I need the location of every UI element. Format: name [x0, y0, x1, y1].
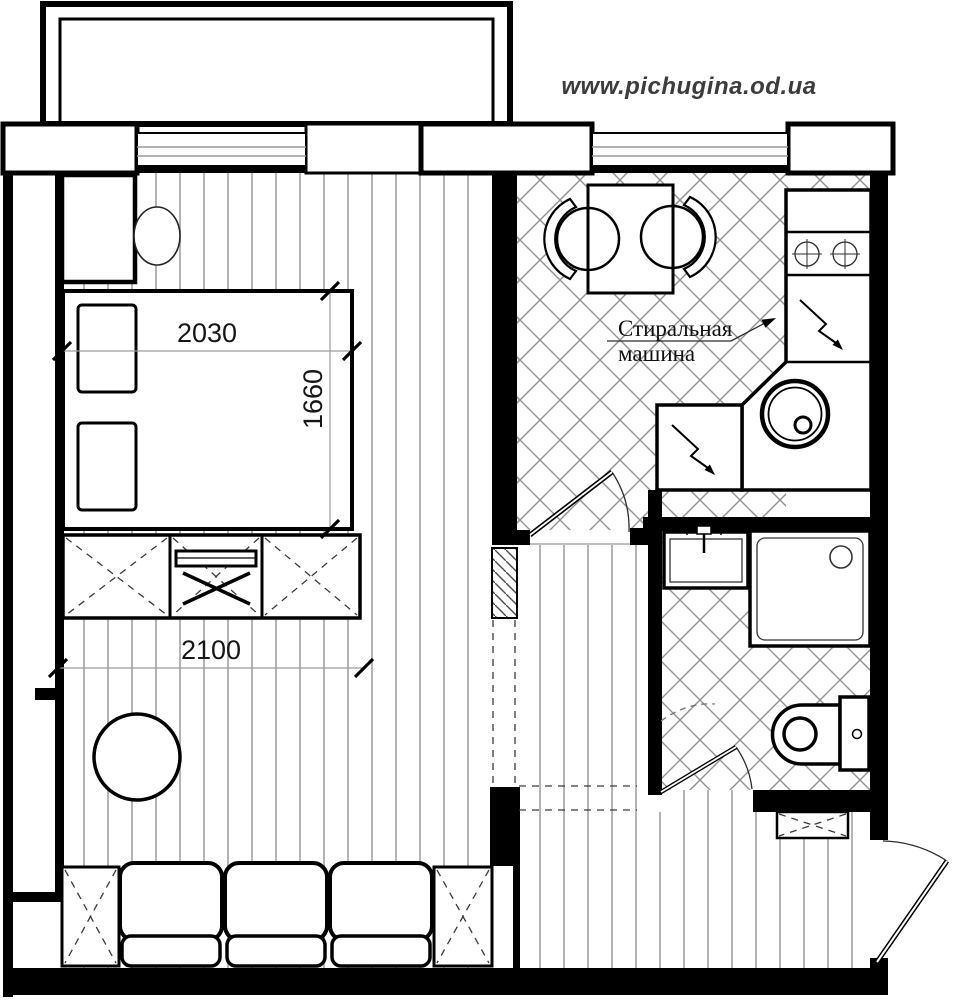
shower-cabin: [750, 531, 870, 646]
center-wall-upper: [492, 173, 517, 545]
dimension-text-2030: 2030: [177, 318, 237, 348]
washing-machine-label-line2: машина: [618, 341, 695, 366]
kitchen-table: [588, 185, 673, 293]
shoe-cabinet: [777, 812, 848, 838]
sofa-back-cushion: [225, 863, 327, 940]
sofa-seat-cushion: [332, 936, 430, 966]
kitchen-tile-strip: [786, 173, 872, 190]
site-watermark: www.pichugina.od.ua: [561, 73, 816, 100]
floor-plan-page: 2030 1660 2100 www.pichugina.od.ua Стира…: [0, 0, 953, 1000]
center-wall-lower-line: [513, 866, 520, 968]
pillow-bottom: [78, 423, 136, 510]
floor-plan-drawing: 2030 1660 2100 www.pichugina.od.ua Стира…: [0, 0, 953, 1000]
bathroom-left-wall: [648, 490, 662, 795]
sofa-seat-cushion: [227, 936, 325, 966]
toilet: [773, 697, 870, 770]
hall-wood-floor-strip: [662, 788, 753, 812]
bathroom-top-wall: [643, 517, 872, 531]
hall-wood-floor: [520, 545, 648, 968]
bathroom-bottom-wall: [753, 790, 888, 812]
kitchen-door-jamb-left: [517, 530, 530, 545]
wardrobe: [62, 175, 135, 282]
top-wall-center-block: [421, 124, 592, 173]
kitchen-window: [592, 133, 788, 173]
chair: [134, 207, 180, 265]
round-table: [94, 714, 180, 800]
tv-cabinet-row: [63, 535, 360, 618]
top-wall-pier: [306, 124, 421, 173]
dimension-text-2100: 2100: [181, 635, 241, 665]
left-wall-cap: [3, 892, 64, 902]
left-wall-outer-face: [3, 124, 13, 997]
new-partition-hatched: [492, 548, 517, 618]
left-wall-step: [35, 688, 64, 700]
refrigerator: [657, 405, 742, 490]
pillow-top: [78, 305, 136, 392]
top-wall-right-corner: [788, 124, 893, 173]
dimension-text-1660: 1660: [298, 369, 328, 429]
bathroom-sink: [664, 525, 748, 588]
living-room-window: [137, 133, 306, 173]
sofa-seat-cushion: [122, 936, 220, 966]
sofa-back-cushion: [330, 863, 432, 940]
washing-machine-label-line1: Стиральная: [618, 316, 733, 341]
center-wall-lower-stub: [490, 787, 520, 866]
sofa: [62, 863, 492, 966]
sofa-back-cushion: [120, 863, 222, 940]
kitchen-sink: [762, 381, 828, 447]
bottom-wall: [3, 968, 888, 995]
top-wall-left-corner: [3, 124, 137, 173]
